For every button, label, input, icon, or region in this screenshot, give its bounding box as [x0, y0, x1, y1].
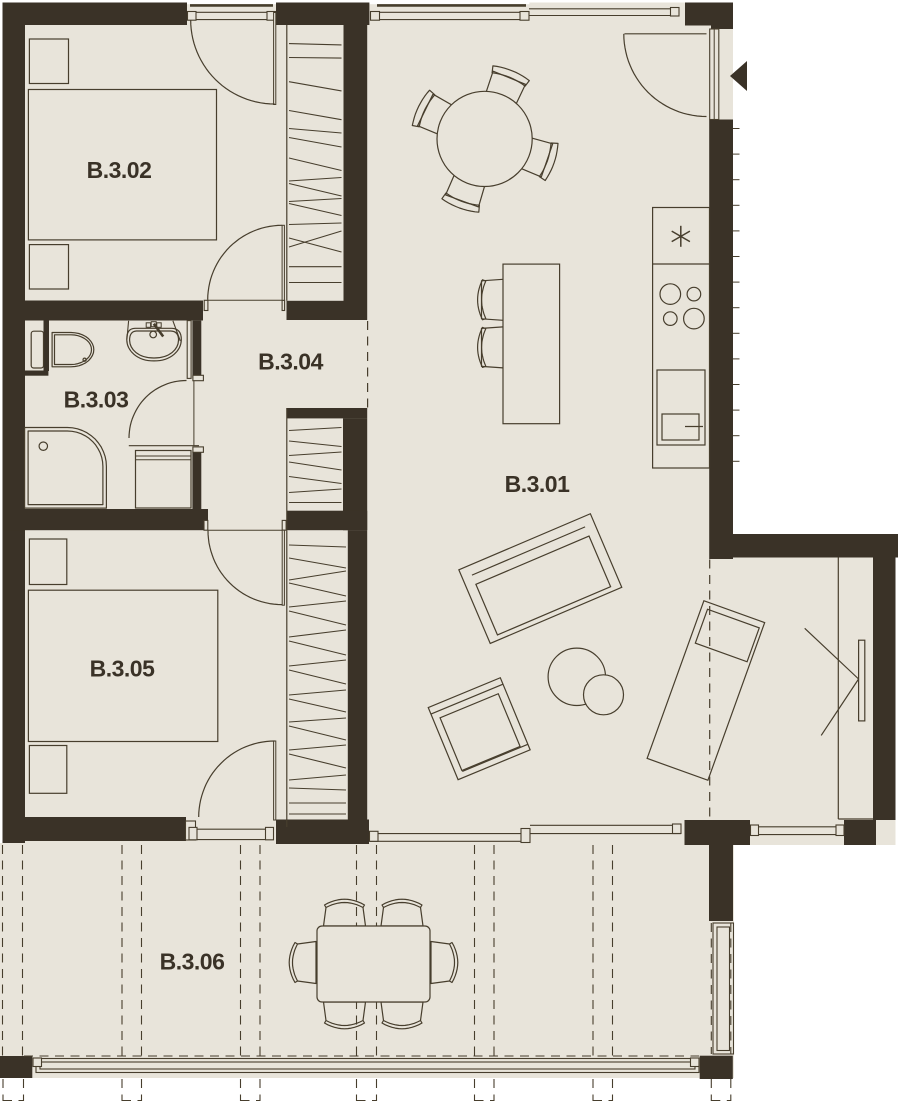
svg-text:B.3.06: B.3.06	[160, 949, 225, 975]
svg-text:B.3.01: B.3.01	[505, 471, 570, 497]
svg-text:B.3.05: B.3.05	[90, 656, 155, 682]
svg-text:B.3.03: B.3.03	[64, 387, 129, 413]
svg-text:B.3.04: B.3.04	[258, 349, 323, 375]
svg-text:B.3.02: B.3.02	[87, 157, 152, 183]
